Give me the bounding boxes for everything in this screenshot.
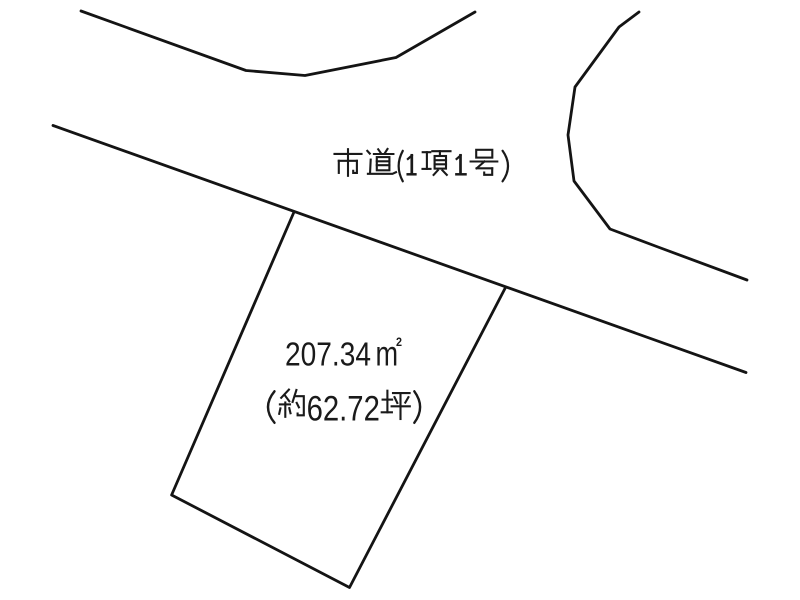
svg-text:2: 2 [396,337,402,349]
svg-text:m: m [376,334,399,373]
svg-text:207.34: 207.34 [285,336,371,373]
svg-text:62.72: 62.72 [307,390,380,429]
